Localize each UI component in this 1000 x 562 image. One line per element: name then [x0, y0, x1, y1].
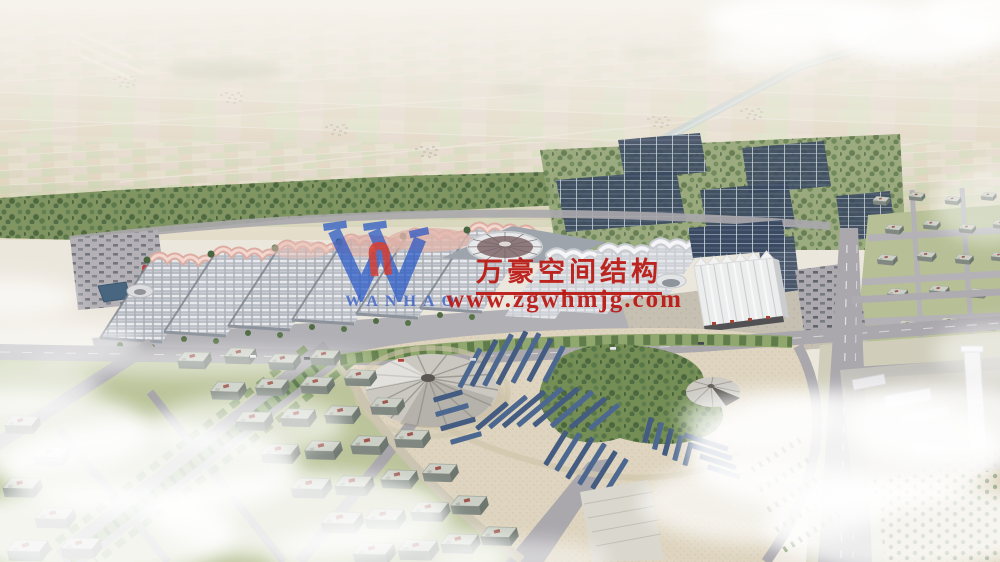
color-grade	[0, 0, 1000, 562]
landscape-canvas	[0, 0, 1000, 562]
aerial-rendering: WANHAO 万豪空间结构 www.zgwhmjg.com	[0, 0, 1000, 562]
